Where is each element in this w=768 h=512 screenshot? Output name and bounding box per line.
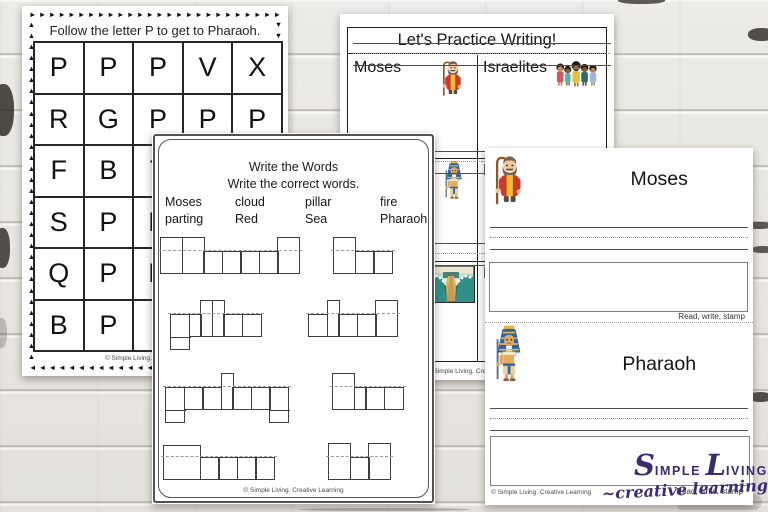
letter-box: [355, 251, 375, 274]
handwriting-lines: [353, 43, 482, 66]
letter-box: [222, 251, 242, 274]
letter-box: [259, 251, 279, 274]
moses-icon: [489, 152, 525, 206]
word-shape-Pharaoh: [160, 237, 300, 274]
word-bank-word: cloud: [235, 194, 265, 211]
words-subtitle: Write the correct words.: [152, 177, 435, 191]
dotted-divider: [485, 322, 753, 323]
letter-box: [328, 443, 351, 480]
top-arrow-icon: ►: [156, 10, 163, 19]
maze-cell: P: [34, 42, 84, 94]
top-arrow-icon: ►: [274, 10, 281, 19]
maze-cell: P: [84, 300, 134, 352]
letter-box: [223, 314, 243, 337]
top-arrow-icon: ►: [97, 10, 104, 19]
bottom-arrow-icon: ◄: [117, 363, 124, 372]
words-title: Write the Words: [152, 160, 435, 174]
word-bank-word: Red: [235, 211, 265, 228]
x-height-dashed-line: [161, 456, 277, 457]
letter-box: [375, 300, 398, 337]
letter-box: [237, 457, 257, 480]
word-bank-column: Moses parting: [165, 194, 203, 228]
handwriting-lines: [490, 227, 748, 250]
wood-knot: [748, 28, 768, 41]
letter-box: [240, 251, 260, 274]
letter-box: [365, 387, 385, 410]
letter-box: [332, 373, 355, 410]
letter-box: [357, 314, 377, 337]
maze-cell: X: [232, 42, 282, 94]
word-bank-word: parting: [165, 211, 203, 228]
section-title-pharaoh: Pharaoh: [565, 353, 753, 376]
maze-cell: P: [133, 42, 183, 94]
practice-cell-israelites: Israelites: [477, 55, 606, 158]
arrow-border-top: ►►►►►►►►►►►►►►►►►►►►►►►►►►: [29, 10, 281, 19]
word-shape-pillar: [170, 300, 262, 337]
top-arrow-icon: ►: [234, 10, 241, 19]
letter-box: [384, 387, 404, 410]
word-bank-word: fire: [380, 194, 427, 211]
handwriting-lines: [482, 43, 611, 66]
top-arrow-icon: ►: [176, 10, 183, 19]
maze-cell: P: [84, 42, 134, 94]
word-bank-word: pillar: [305, 194, 331, 211]
letter-box: [242, 314, 262, 337]
maze-cell: G: [84, 94, 134, 146]
top-arrow-icon: ►: [29, 10, 36, 19]
letter-box: [200, 457, 220, 480]
copyright-credit: © Simple Living. Creative Learning: [491, 489, 591, 496]
word-bank-word: Sea: [305, 211, 331, 228]
handwriting-lines: [490, 408, 748, 431]
x-height-dashed-line: [306, 313, 400, 314]
top-arrow-icon: ►: [215, 10, 222, 19]
top-arrow-icon: ►: [39, 10, 46, 19]
top-arrow-icon: ►: [146, 10, 153, 19]
word-bank-column: fire Pharaoh: [380, 194, 427, 228]
letter-box: [203, 251, 223, 274]
wood-knot: [300, 508, 470, 511]
maze-cell: R: [34, 94, 84, 146]
letter-box: [165, 387, 185, 423]
word-shape-Moses: [163, 443, 275, 480]
word-bank-word: Pharaoh: [380, 211, 427, 228]
letter-box: [160, 237, 183, 274]
top-arrow-icon: ►: [49, 10, 56, 19]
letter-box: [368, 443, 391, 480]
word-bank-column: pillar Sea: [305, 194, 331, 228]
top-arrow-icon: ►: [186, 10, 193, 19]
bottom-arrow-icon: ◄: [68, 363, 75, 372]
letter-box: [170, 314, 190, 350]
letter-box: [308, 314, 328, 337]
letter-box: [338, 314, 358, 337]
maze-cell: P: [84, 248, 134, 300]
top-arrow-icon: ►: [244, 10, 251, 19]
letter-box: [255, 457, 275, 480]
x-height-dashed-line: [330, 386, 406, 387]
top-arrow-icon: ►: [137, 10, 144, 19]
simple-living-logo: SIMPLE LIVING ~creative learning: [598, 450, 768, 499]
word-shape-Red: [328, 443, 391, 480]
word-bank-word: Moses: [165, 194, 203, 211]
maze-cell: Q: [34, 248, 84, 300]
top-arrow-icon: ►: [68, 10, 75, 19]
top-arrow-icon: ►: [254, 10, 261, 19]
top-arrow-icon: ►: [58, 10, 65, 19]
section-title-moses: Moses: [565, 168, 753, 191]
maze-cell: F: [34, 145, 84, 197]
bottom-arrow-icon: ◄: [29, 363, 36, 372]
top-arrow-icon: ►: [107, 10, 114, 19]
letter-box: [218, 457, 238, 480]
bottom-arrow-icon: ◄: [78, 363, 85, 372]
bottom-arrow-icon: ◄: [49, 363, 56, 372]
stamp-box: [489, 262, 748, 312]
word-shape-parting: [165, 373, 289, 410]
x-height-dashed-line: [326, 456, 393, 457]
letter-box: [269, 387, 289, 423]
wood-knot: [752, 246, 768, 253]
bottom-arrow-icon: ◄: [107, 363, 114, 372]
letter-box: [202, 387, 222, 410]
maze-cell: V: [183, 42, 233, 94]
maze-cell: B: [84, 145, 134, 197]
pharaoh-icon: [490, 324, 528, 383]
word-shape-fire: [332, 373, 404, 410]
letter-box: [277, 237, 300, 274]
top-arrow-icon: ►: [127, 10, 134, 19]
top-arrow-icon: ►: [166, 10, 173, 19]
maze-cell: B: [34, 300, 84, 352]
top-arrow-icon: ►: [225, 10, 232, 19]
copyright-credit: © Simple Living. Creative Learning: [152, 487, 435, 494]
x-height-dashed-line: [331, 250, 395, 251]
maze-cell: P: [84, 197, 134, 249]
maze-cell: S: [34, 197, 84, 249]
bottom-arrow-icon: ◄: [39, 363, 46, 372]
word-shape-Sea: [333, 237, 393, 274]
section-caption: Read, write, stamp: [678, 312, 745, 321]
top-arrow-icon: ►: [264, 10, 271, 19]
letter-box: [163, 445, 201, 480]
letter-box: [333, 237, 356, 274]
bottom-arrow-icon: ◄: [88, 363, 95, 372]
bottom-arrow-icon: ◄: [97, 363, 104, 372]
maze-title: Follow the letter P to get to Pharaoh.: [22, 23, 288, 38]
letter-box: [350, 457, 370, 480]
top-arrow-icon: ►: [117, 10, 124, 19]
word-bank-column: cloud Red: [235, 194, 265, 228]
letter-box: [182, 237, 205, 274]
top-arrow-icon: ►: [205, 10, 212, 19]
x-height-dashed-line: [158, 250, 302, 251]
bottom-arrow-icon: ◄: [137, 363, 144, 372]
top-arrow-icon: ►: [78, 10, 85, 19]
top-arrow-icon: ►: [195, 10, 202, 19]
write-the-words-worksheet: Write the Words Write the correct words.…: [152, 133, 435, 504]
bottom-arrow-icon: ◄: [127, 363, 134, 372]
letter-box: [232, 387, 252, 410]
letter-box: [373, 251, 393, 274]
letter-box: [184, 387, 204, 410]
bottom-arrow-icon: ◄: [58, 363, 65, 372]
letter-box: [251, 387, 271, 410]
word-shape-cloud: [308, 300, 398, 337]
top-arrow-icon: ►: [88, 10, 95, 19]
